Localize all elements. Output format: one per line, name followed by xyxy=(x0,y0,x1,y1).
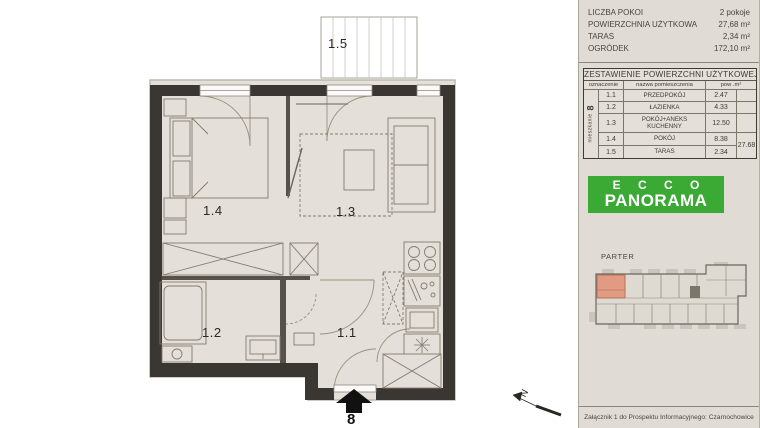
room-code: 1.1 xyxy=(599,90,624,102)
apartment-number: 8 xyxy=(586,105,596,110)
room-code: 1.4 xyxy=(599,133,624,146)
overview-stairs xyxy=(690,286,700,298)
info-row: TARAS 2,34 m² xyxy=(588,31,750,43)
room-label-taras: 1.5 xyxy=(328,36,348,51)
col-header-area: pow .m² xyxy=(706,81,756,90)
room-label-pokoj: 1.4 xyxy=(203,203,223,218)
info-label: LICZBA POKOI xyxy=(588,7,643,19)
building-overview-plan xyxy=(588,262,752,338)
entrance-apartment-number: 8 xyxy=(347,411,355,428)
info-row: POWIERZCHNIA UŻYTKOWA 27,68 m² xyxy=(588,19,750,31)
info-label: TARAS xyxy=(588,31,614,43)
apartment-card: 1.5 1.4 1.3 1.2 1.1 8 N LICZBA POKOI 2 p… xyxy=(0,0,760,428)
room-label-pokoj-aneks: 1.3 xyxy=(336,204,356,219)
footer: Załącznik 1 do Prospektu Informacyjnego:… xyxy=(579,406,759,428)
side-panel: LICZBA POKOI 2 pokoje POWIERZCHNIA UŻYTK… xyxy=(578,0,760,428)
info-value: 172,10 m² xyxy=(714,43,750,55)
info-label: OGRÓDEK xyxy=(588,43,629,55)
room-name: TARAS xyxy=(624,146,706,158)
floor-name-label: PARTER xyxy=(601,252,634,261)
brand-line2: PANORAMA xyxy=(588,192,724,210)
area-summary-table: ZESTAWIENIE POWIERZCHNI UŻYTKOWEJ oznacz… xyxy=(583,68,757,159)
room-code: 1.5 xyxy=(599,146,624,158)
col-header-designation: oznaczenie xyxy=(584,81,624,90)
room-area: 2.34 xyxy=(706,146,737,158)
summary-info-box: LICZBA POKOI 2 pokoje POWIERZCHNIA UŻYTK… xyxy=(579,0,759,63)
brand-banner: E C C O PANORAMA xyxy=(588,176,724,213)
room-code: 1.3 xyxy=(599,114,624,133)
fan-icon xyxy=(414,337,430,353)
footer-caption: Załącznik 1 do Prospektu Informacyjnego:… xyxy=(584,414,754,421)
room-label-przedpokoj: 1.1 xyxy=(337,325,357,340)
info-row: LICZBA POKOI 2 pokoje xyxy=(588,7,750,19)
table-title: ZESTAWIENIE POWIERZCHNI UŻYTKOWEJ xyxy=(584,69,756,81)
apartment-word: mieszkanie xyxy=(588,114,594,143)
info-row: OGRÓDEK 172,10 m² xyxy=(588,43,750,55)
room-name: POKÓJ xyxy=(624,133,706,146)
room-name: PRZEDPOKÓJ xyxy=(624,90,706,102)
apartment-floor xyxy=(150,80,455,400)
col-header-room-name: nazwa pomieszczenia xyxy=(624,81,706,90)
floor-plan-drawing xyxy=(0,0,578,428)
room-name: POKÓJ+ANEKS KUCHENNY xyxy=(624,114,706,133)
room-label-lazienka: 1.2 xyxy=(202,325,222,340)
highlighted-unit xyxy=(597,275,625,298)
apartment-designation-cell: mieszkanie 8 xyxy=(584,90,599,158)
room-area: 12.50 xyxy=(706,114,737,133)
info-label: POWIERZCHNIA UŻYTKOWA xyxy=(588,19,697,31)
room-area: 8.38 xyxy=(706,133,737,146)
total-area: 27.68 xyxy=(737,133,756,158)
room-area: 4.33 xyxy=(706,102,737,114)
info-value: 2,34 m² xyxy=(723,31,750,43)
info-value: 27,68 m² xyxy=(718,19,750,31)
info-value: 2 pokoje xyxy=(720,7,750,19)
room-name: ŁAZIENKA xyxy=(624,102,706,114)
room-area: 2.47 xyxy=(706,90,737,102)
room-code: 1.2 xyxy=(599,102,624,114)
